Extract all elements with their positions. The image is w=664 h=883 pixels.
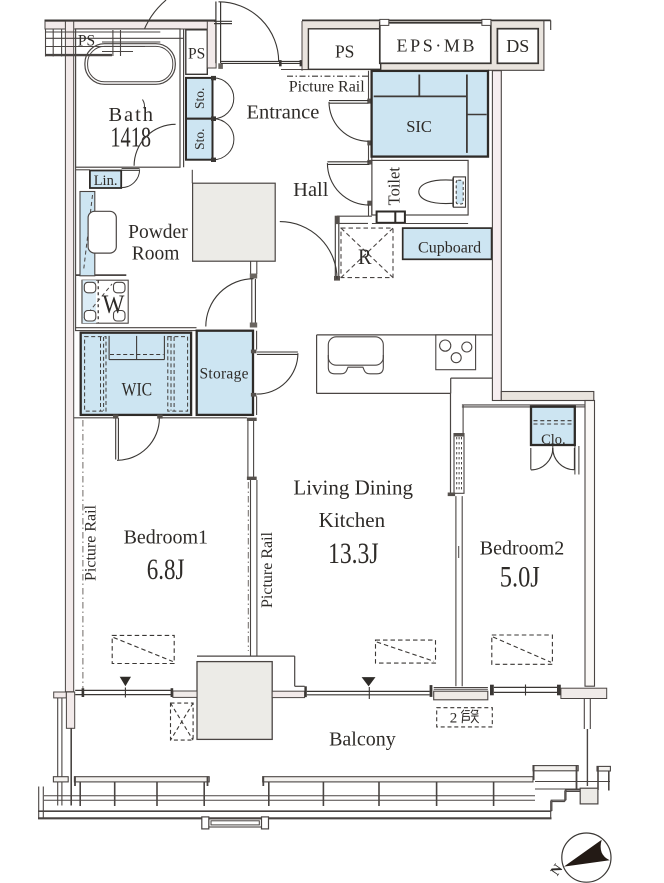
svg-text:Clo.: Clo. — [541, 432, 566, 448]
svg-text:5.0J: 5.0J — [500, 561, 540, 594]
svg-text:Living Dining: Living Dining — [293, 476, 413, 500]
svg-text:Entrance: Entrance — [246, 101, 319, 123]
svg-text:Toilet: Toilet — [385, 167, 404, 206]
svg-text:PS: PS — [78, 33, 95, 50]
svg-text:Room: Room — [132, 244, 180, 265]
svg-text:Kitchen: Kitchen — [319, 508, 386, 532]
svg-text:Hall: Hall — [293, 179, 329, 201]
svg-text:SIC: SIC — [406, 117, 432, 136]
svg-text:W: W — [102, 290, 124, 319]
svg-text:PS: PS — [188, 45, 205, 62]
svg-text:Cupboard: Cupboard — [418, 239, 481, 256]
svg-text:Lin.: Lin. — [94, 173, 118, 189]
svg-text:Bedroom2: Bedroom2 — [480, 537, 564, 559]
svg-text:R: R — [358, 244, 372, 269]
svg-text:Picture Rail: Picture Rail — [289, 79, 366, 96]
svg-text:13.3J: 13.3J — [328, 537, 379, 570]
svg-text:Bedroom1: Bedroom1 — [124, 526, 208, 548]
svg-text:6.8J: 6.8J — [147, 553, 185, 586]
svg-text:Balcony: Balcony — [329, 729, 396, 751]
svg-text:Sto.: Sto. — [192, 129, 207, 150]
svg-text:Sto.: Sto. — [192, 88, 207, 109]
svg-text:2: 2 — [450, 711, 458, 727]
svg-text:PS: PS — [335, 42, 354, 62]
svg-text:WIC: WIC — [122, 380, 153, 400]
svg-text:Powder: Powder — [128, 222, 188, 243]
svg-text:Picture Rail: Picture Rail — [259, 531, 276, 608]
svg-text:DS: DS — [506, 36, 529, 56]
svg-text:Picture Rail: Picture Rail — [82, 504, 99, 581]
svg-text:Storage: Storage — [200, 366, 249, 383]
